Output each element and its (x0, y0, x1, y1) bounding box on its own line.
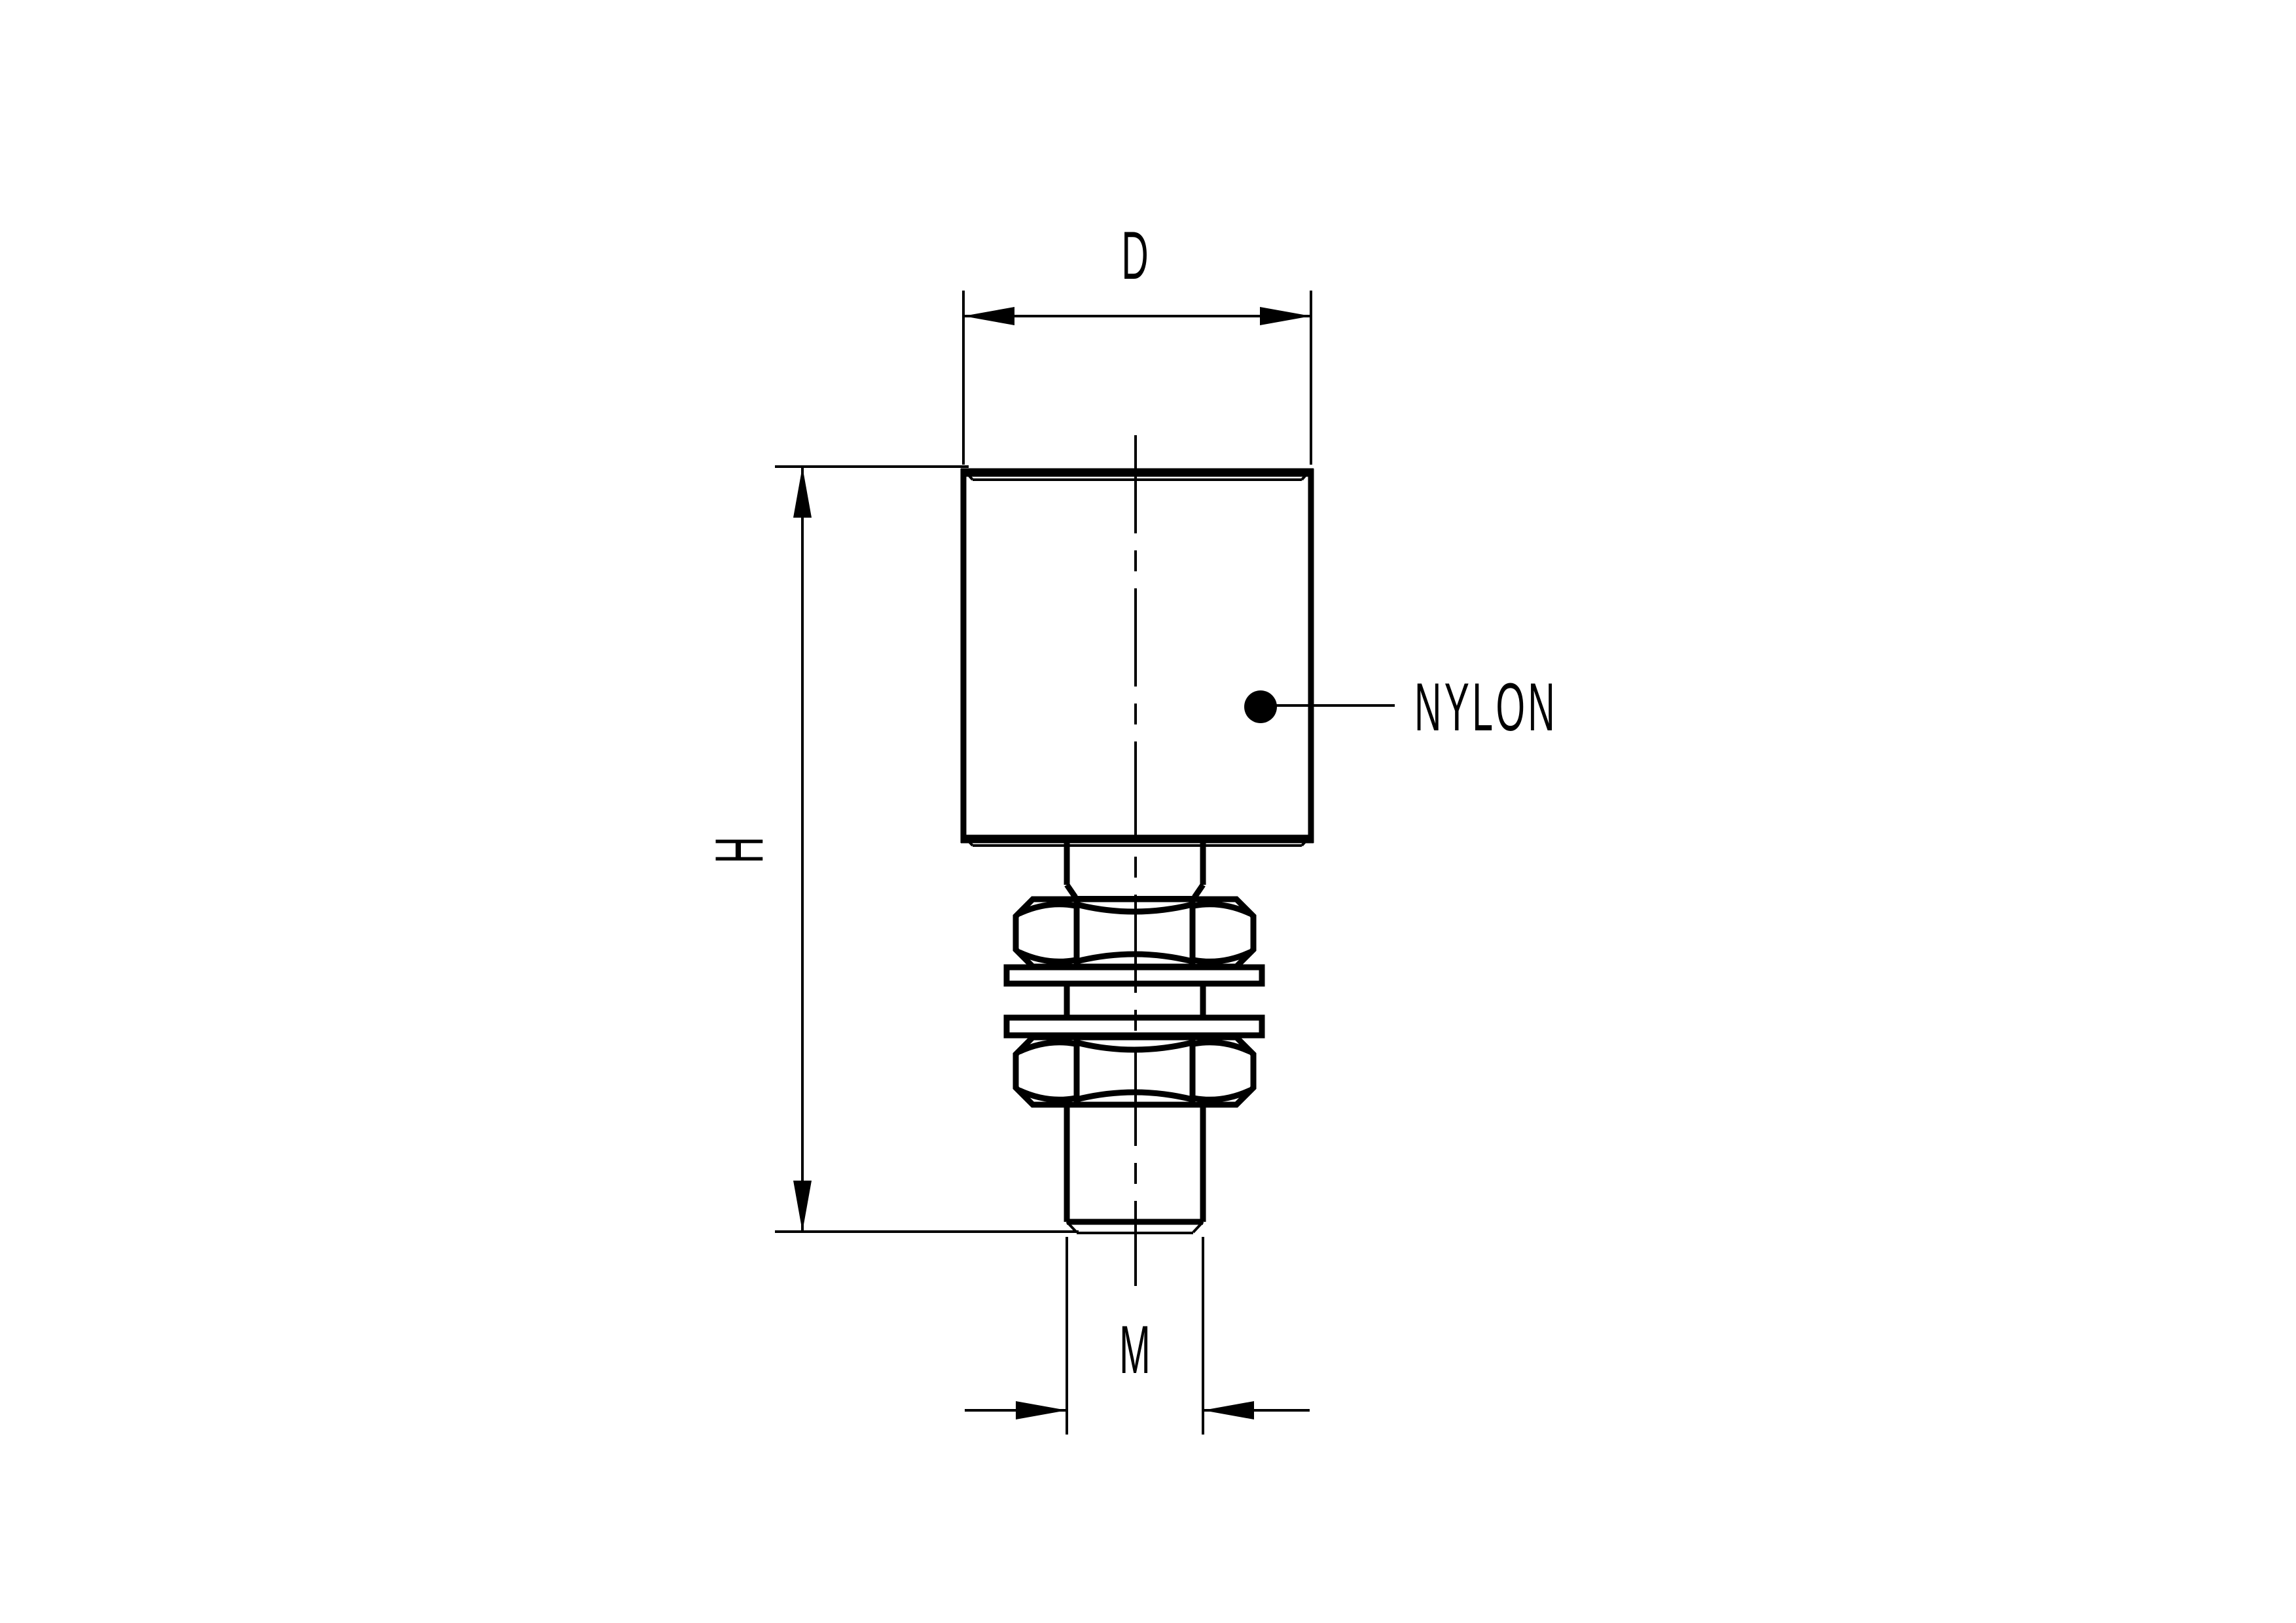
thread-label: M (1119, 1311, 1151, 1387)
diameter-label: D (1121, 217, 1148, 293)
material-label: NYLON (1414, 669, 1558, 745)
height-label: H (701, 836, 777, 863)
arrowhead-right-icon (1260, 307, 1311, 325)
dimension-h: H (701, 467, 1079, 1232)
arrowhead-up-icon (793, 467, 812, 518)
dimension-m: M (965, 1237, 1310, 1435)
arrowhead-inward-left-icon (1203, 1401, 1254, 1419)
drawing-sheet: D H M NYLON (0, 0, 2296, 1623)
arrowhead-left-icon (963, 307, 1014, 325)
arrowhead-inward-right-icon (1016, 1401, 1067, 1419)
technical-drawing: D H M NYLON (0, 0, 2296, 1623)
cylinder-body (961, 469, 1314, 846)
arrowhead-down-icon (793, 1181, 812, 1232)
leader-dot-icon (1244, 690, 1277, 723)
dimension-d: D (963, 217, 1311, 465)
material-callout: NYLON (1244, 669, 1558, 745)
